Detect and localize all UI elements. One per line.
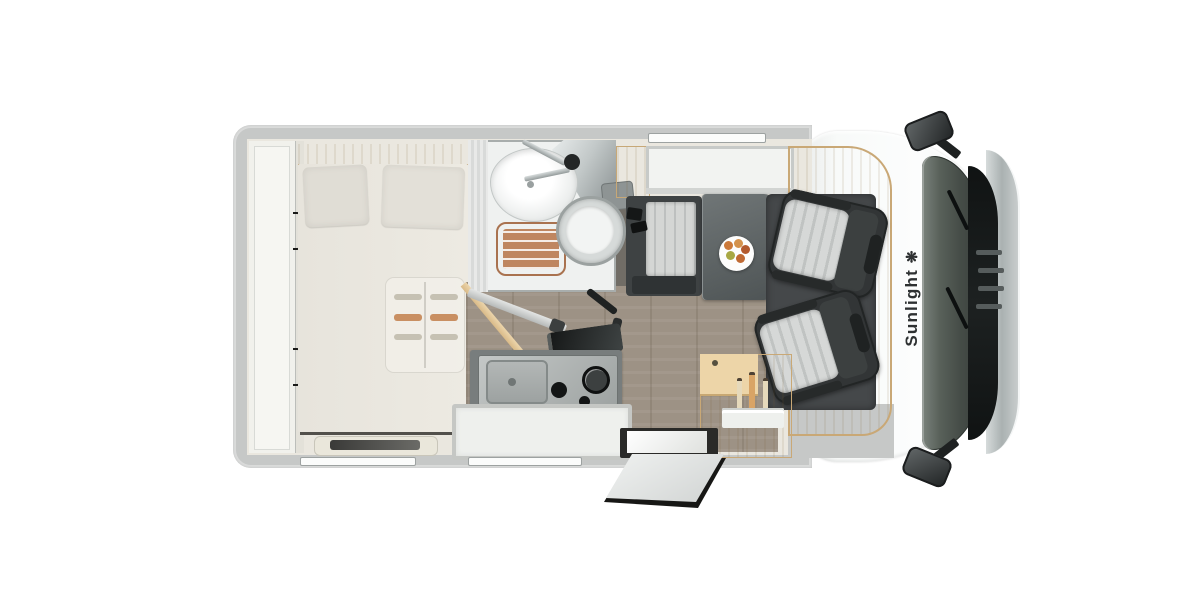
brand-name: Sunlight — [902, 269, 921, 347]
brand-logo-icon: ❋ — [904, 249, 921, 263]
bench-cushion — [646, 202, 696, 276]
wardrobe-shelf — [616, 146, 650, 198]
window-bottom-left — [300, 457, 416, 466]
overhead-locker — [646, 146, 794, 194]
brand-lettering: Sunlight ❋ — [902, 216, 930, 380]
kitchen-sink-drain — [508, 378, 516, 386]
window-top — [648, 133, 766, 143]
grille-slat — [978, 268, 1004, 273]
grille-slat — [978, 286, 1004, 291]
kitchen-drawer-front — [452, 404, 632, 460]
pillow — [302, 164, 369, 227]
cutlery-icon — [430, 294, 458, 300]
hob-burner — [582, 366, 610, 394]
cabinet-vent-hole — [712, 360, 718, 366]
grille-slat — [976, 304, 1002, 309]
kitchen-sink — [486, 360, 548, 404]
candle-icon — [749, 372, 755, 413]
toilet-bowl — [566, 206, 614, 254]
grille-slat — [976, 250, 1002, 255]
entry-step — [627, 431, 707, 453]
cutlery-divider — [424, 282, 426, 368]
window-bottom-mid — [468, 457, 582, 466]
motorhome-floorplan: Sunlight ❋ — [0, 0, 1200, 600]
washbasin-drain — [527, 181, 534, 188]
bathroom-wall-ribbed — [468, 140, 488, 292]
faucet-base — [564, 154, 580, 170]
bench-front-pad — [632, 276, 696, 294]
hob-burner — [551, 382, 567, 398]
fruit — [736, 254, 745, 263]
cutlery-icon — [394, 294, 422, 300]
cutlery-icon — [394, 334, 422, 340]
fruit — [741, 245, 750, 254]
rear-storage-panel — [254, 146, 290, 450]
pillow — [381, 165, 465, 230]
fruit — [726, 251, 735, 260]
wiper-cowl — [968, 166, 998, 440]
cutlery-icon — [430, 334, 458, 340]
bed-foot-hatch — [330, 440, 420, 450]
headrest-bracket-icon — [626, 207, 643, 221]
cutlery-icon — [430, 314, 458, 321]
cutlery-icon — [394, 314, 422, 321]
bed-rail — [300, 432, 466, 435]
cabinet-step-shelf — [722, 408, 784, 428]
bed-headboard-shelf — [298, 144, 468, 165]
fruit — [724, 241, 733, 250]
